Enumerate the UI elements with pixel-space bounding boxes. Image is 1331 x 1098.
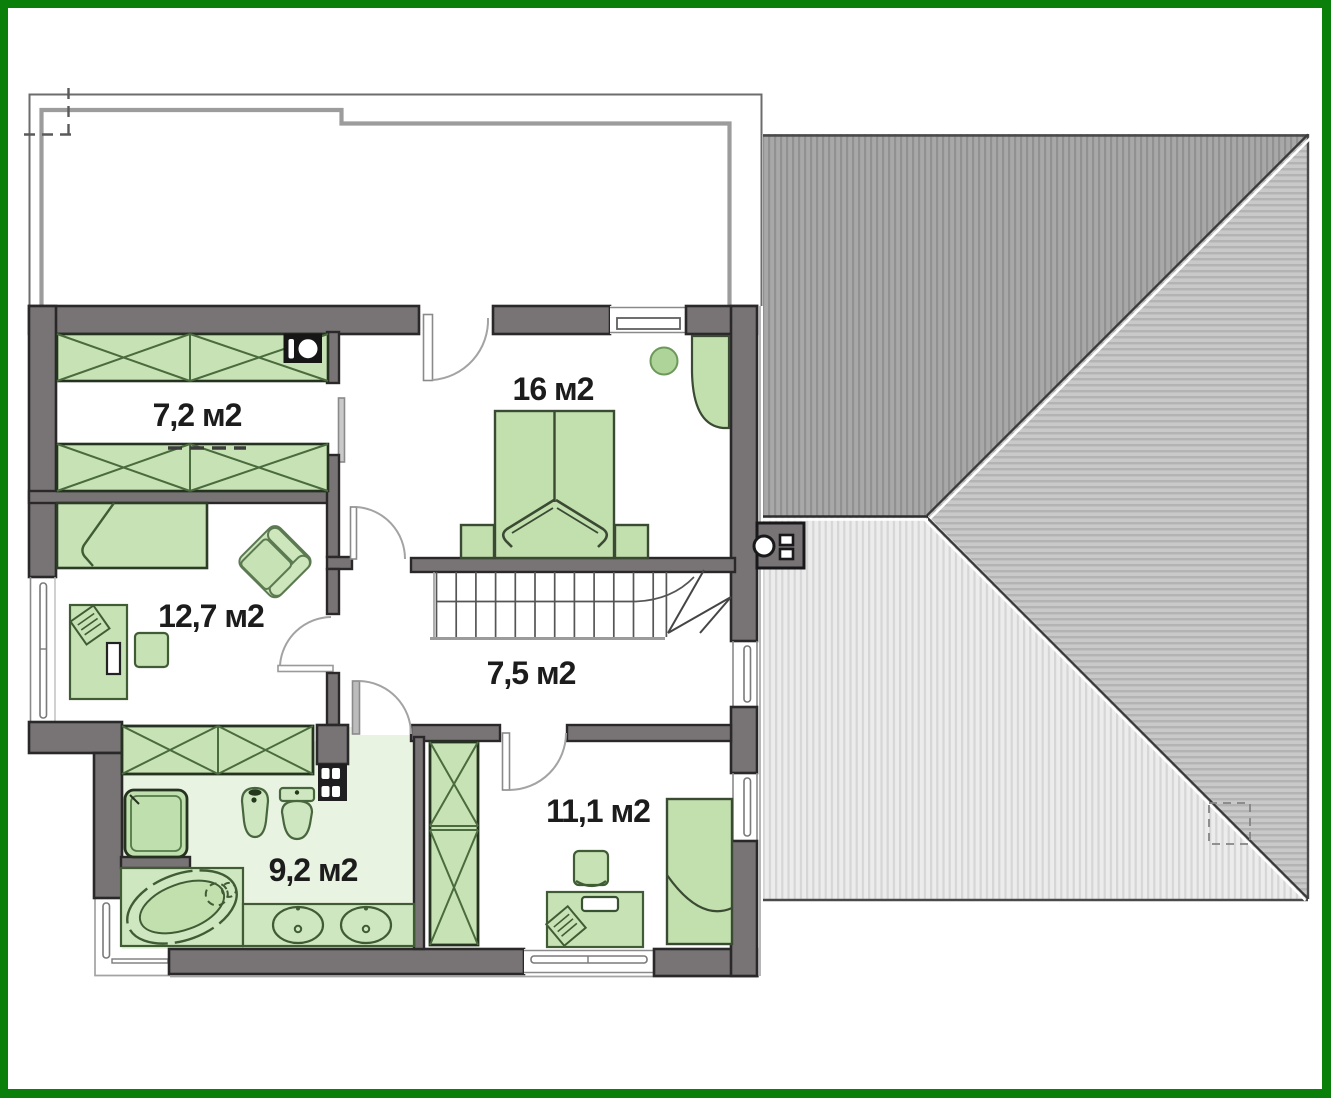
svg-text:7,5 м2: 7,5 м2	[487, 655, 576, 691]
svg-text:7,2 м2: 7,2 м2	[153, 397, 242, 433]
svg-text:9,2 м2: 9,2 м2	[269, 852, 358, 888]
svg-text:12,7 м2: 12,7 м2	[158, 598, 264, 634]
svg-text:11,1 м2: 11,1 м2	[546, 793, 650, 829]
svg-text:16 м2: 16 м2	[513, 371, 594, 407]
